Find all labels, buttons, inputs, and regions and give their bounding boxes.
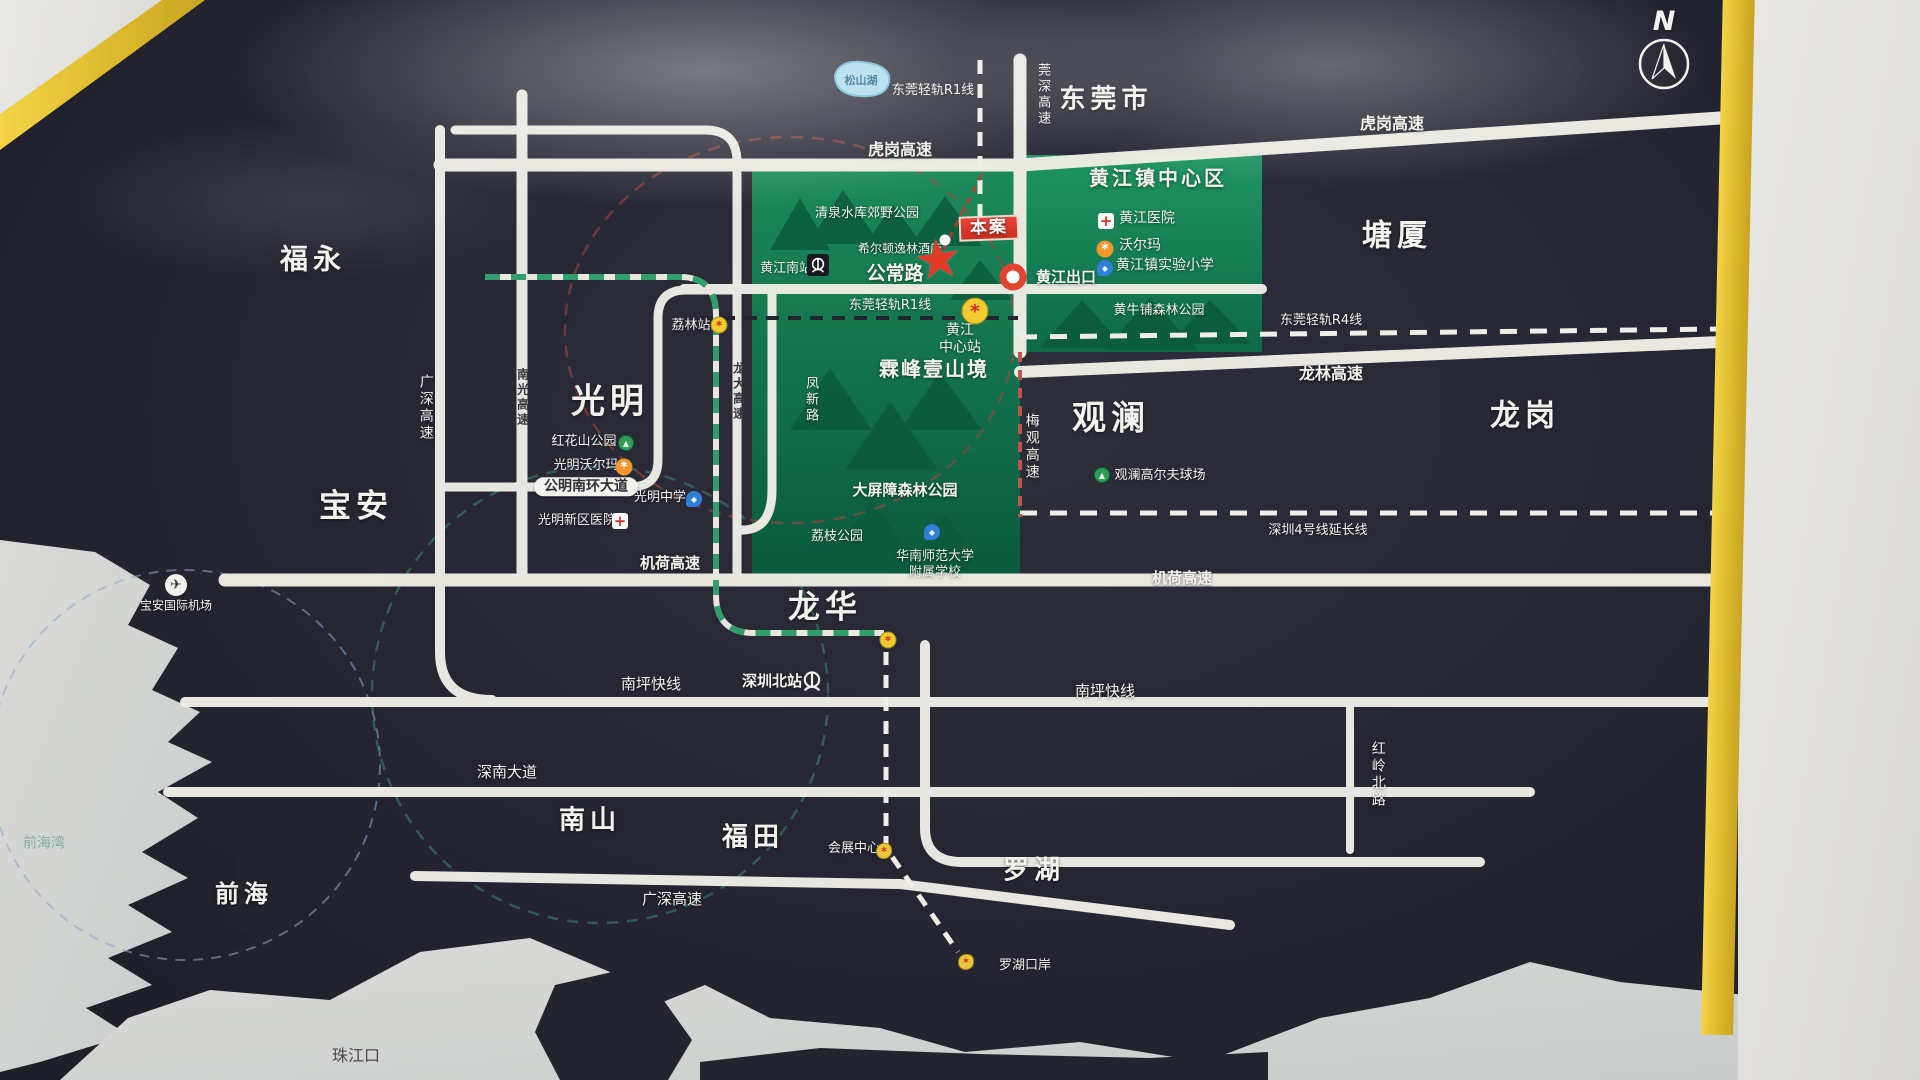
poi-huangjiang-south-station: 黄江南站 — [760, 262, 812, 276]
guangming-hospital-cross-icon: + — [612, 513, 628, 529]
walmart-spark-icon: * — [1097, 241, 1114, 258]
region-tangxia: 塘厦 — [1362, 220, 1432, 253]
road-longlin-expwy: 龙林高速 — [1299, 365, 1363, 383]
poi-linfeng-project-name: 霖峰壹山境 — [879, 358, 989, 380]
airport-plane-icon: ✈ — [165, 574, 187, 596]
rail-sz-line4-extension-label: 深圳4号线延长线 — [1268, 524, 1367, 538]
poi-dapingzhang-forest-park: 大屏障森林公园 — [852, 482, 957, 499]
compass-n-label: N — [1653, 7, 1676, 37]
road-guangshen-expwy-left: 广深高速 — [417, 374, 432, 442]
poi-lizhi-park: 荔枝公园 — [811, 530, 863, 544]
compass-icon — [1637, 37, 1691, 91]
region-dongguan: 东莞市 — [1059, 86, 1152, 115]
region-fuyong: 福永 — [280, 245, 346, 276]
rail-dongguan-r4-label: 东莞轻轨R4线 — [1280, 314, 1362, 328]
region-luohu: 罗湖 — [1003, 857, 1065, 886]
poi-guangming-district-hospital: 光明新区医院 — [538, 514, 616, 528]
luohu-port-icon: * — [958, 954, 974, 970]
rail-dongguan-r1-label-top: 东莞轻轨R1线 — [892, 84, 974, 98]
road-fengxin-road: 凤新路 — [803, 376, 817, 424]
project-star-icon: ★ — [910, 224, 967, 293]
road-nanping-expwy-left: 南坪快线 — [621, 676, 681, 693]
region-nanshan: 南山 — [559, 807, 621, 836]
road-guanshen-expwy: 莞深高速 — [1035, 63, 1049, 127]
road-nanguang-expwy: 南光高速 — [515, 368, 528, 428]
poi-shenzhen-north-station: 深圳北站 — [742, 673, 802, 690]
poi-convention-center: 会展中心 — [828, 842, 880, 856]
sea-area — [0, 540, 1745, 1080]
region-futian: 福田 — [722, 824, 784, 853]
poi-lilin-station: 荔林站 — [671, 319, 710, 333]
road-jihe-expwy-right: 机荷高速 — [1152, 570, 1212, 587]
guangming-walmart-spark-icon: * — [616, 459, 633, 476]
huangjiang-south-train-icon — [807, 254, 829, 276]
road-meiguan-expwy: 梅观高速 — [1023, 413, 1038, 481]
project-pin-dot-icon — [940, 235, 951, 246]
project-site-badge: 本案 — [959, 215, 1020, 242]
huangjiang-school-flag-icon: ◆ — [1097, 260, 1113, 276]
huangjiang-center-metro-icon: * — [962, 298, 989, 325]
rail-terminus-metro-icon: * — [880, 632, 897, 649]
region-guanlan: 观澜 — [1072, 400, 1150, 437]
poi-baoan-intl-airport: 宝安国际机场 — [140, 599, 212, 612]
scnu-school-flag-icon: ◆ — [924, 524, 940, 540]
huangjiang-hospital-cross-icon: + — [1098, 213, 1114, 229]
road-nanping-expwy-right: 南坪快线 — [1075, 683, 1135, 700]
road-longda-expwy: 龙大高速 — [731, 362, 744, 422]
road-jihe-expwy-left: 机荷高速 — [640, 555, 700, 572]
region-baoan: 宝安 — [319, 488, 393, 523]
road-shennan-blvd: 深南大道 — [477, 764, 537, 781]
huangjiang-exit-ring-icon — [1000, 264, 1027, 291]
poi-walmart: 沃尔玛 — [1119, 238, 1161, 253]
region-longgang: 龙岗 — [1490, 400, 1560, 433]
road-hugang-expwy-right: 虎岗高速 — [1360, 115, 1424, 133]
road-hugang-expwy-left: 虎岗高速 — [868, 141, 932, 159]
poi-huangjiang-center-station-line1: 黄江 — [946, 323, 974, 338]
zone-title-huangjiang-center: 黄江镇中心区 — [1089, 167, 1227, 189]
poi-huangjiang-hospital: 黄江医院 — [1119, 211, 1175, 226]
lilin-metro-icon: * — [711, 317, 728, 334]
poi-qingquan-country-park: 清泉水库郊野公园 — [815, 207, 919, 221]
poi-guanlan-golf-club: 观澜高尔夫球场 — [1114, 469, 1205, 483]
poi-huangniupu-forest-park: 黄牛铺森林公园 — [1113, 304, 1204, 318]
shenzhen-north-train-icon — [800, 669, 824, 693]
poi-honghuashan-park: 红花山公园 — [551, 435, 616, 449]
road-guangshen-expwy-bottom: 广深高速 — [642, 891, 702, 908]
honghuashan-park-tree-icon: ▲ — [618, 435, 634, 451]
region-qianhai: 前海 — [215, 881, 273, 907]
road-gongming-south-ring-blvd: 公明南环大道 — [534, 477, 638, 496]
poi-huangjiang-center-station-line2: 中心站 — [939, 340, 981, 355]
region-qianhaiwan: 前海湾 — [23, 836, 65, 851]
map-board: 东莞市 福永 塘厦 光明 宝安 观澜 龙岗 龙华 南山 福田 罗湖 前海 珠江口… — [0, 0, 1920, 1080]
poi-huangjiang-exit: 黄江出口 — [1036, 269, 1096, 286]
map-vector-layer — [0, 0, 1920, 1080]
guangming-school-flag-icon: ◆ — [686, 491, 702, 507]
wall-right — [1738, 0, 1920, 1080]
region-guangming: 光明 — [571, 383, 649, 420]
poi-songshan-lake: 松山湖 — [845, 75, 878, 87]
region-longhua: 龙华 — [788, 589, 862, 624]
poi-scnu-affiliated-school-line1: 华南师范大学 — [896, 550, 974, 564]
road-hongling-north-road: 红岭北路 — [1369, 741, 1384, 809]
rail-dongguan-r1-label-mid: 东莞轻轨R1线 — [849, 299, 931, 313]
guanlan-golf-green-icon: ▲ — [1094, 467, 1110, 483]
region-zhujiangkou: 珠江口 — [332, 1047, 380, 1065]
poi-huangjiang-experimental-school: 黄江镇实验小学 — [1116, 258, 1214, 273]
poi-guangming-middle-school: 光明中学 — [634, 491, 686, 505]
poi-scnu-affiliated-school-line2: 附属学校 — [909, 566, 961, 580]
poi-guangming-walmart: 光明沃尔玛 — [553, 459, 618, 473]
poi-luohu-port: 罗湖口岸 — [999, 959, 1051, 973]
convention-center-icon: * — [876, 843, 892, 859]
